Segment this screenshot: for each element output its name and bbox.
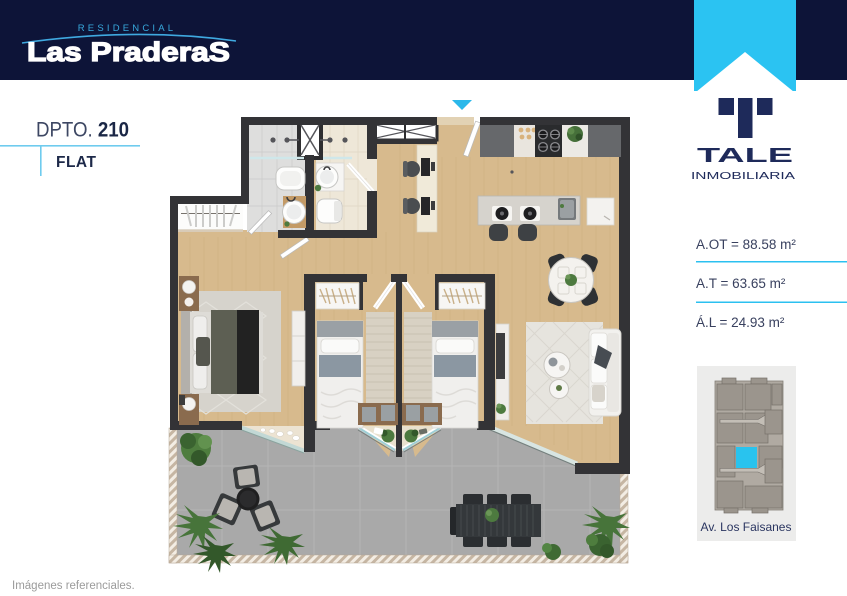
svg-text:Á.L = 24.93 m²: Á.L = 24.93 m² <box>696 315 785 330</box>
svg-text:A.T = 63.65 m²: A.T = 63.65 m² <box>696 276 786 291</box>
svg-text:Av. Los Faisanes: Av. Los Faisanes <box>701 520 792 534</box>
svg-text:RESIDENCIAL: RESIDENCIAL <box>78 23 177 34</box>
svg-text:DPTO. 210: DPTO. 210 <box>36 119 129 142</box>
svg-text:Imágenes referenciales.: Imágenes referenciales. <box>12 580 135 592</box>
svg-text:INMOBILIARIA: INMOBILIARIA <box>691 170 795 182</box>
svg-text:Las PraderaS: Las PraderaS <box>27 37 230 67</box>
svg-text:TALE: TALE <box>697 144 793 167</box>
svg-text:FLAT: FLAT <box>56 154 96 171</box>
svg-text:A.OT = 88.58 m²: A.OT = 88.58 m² <box>696 237 796 252</box>
